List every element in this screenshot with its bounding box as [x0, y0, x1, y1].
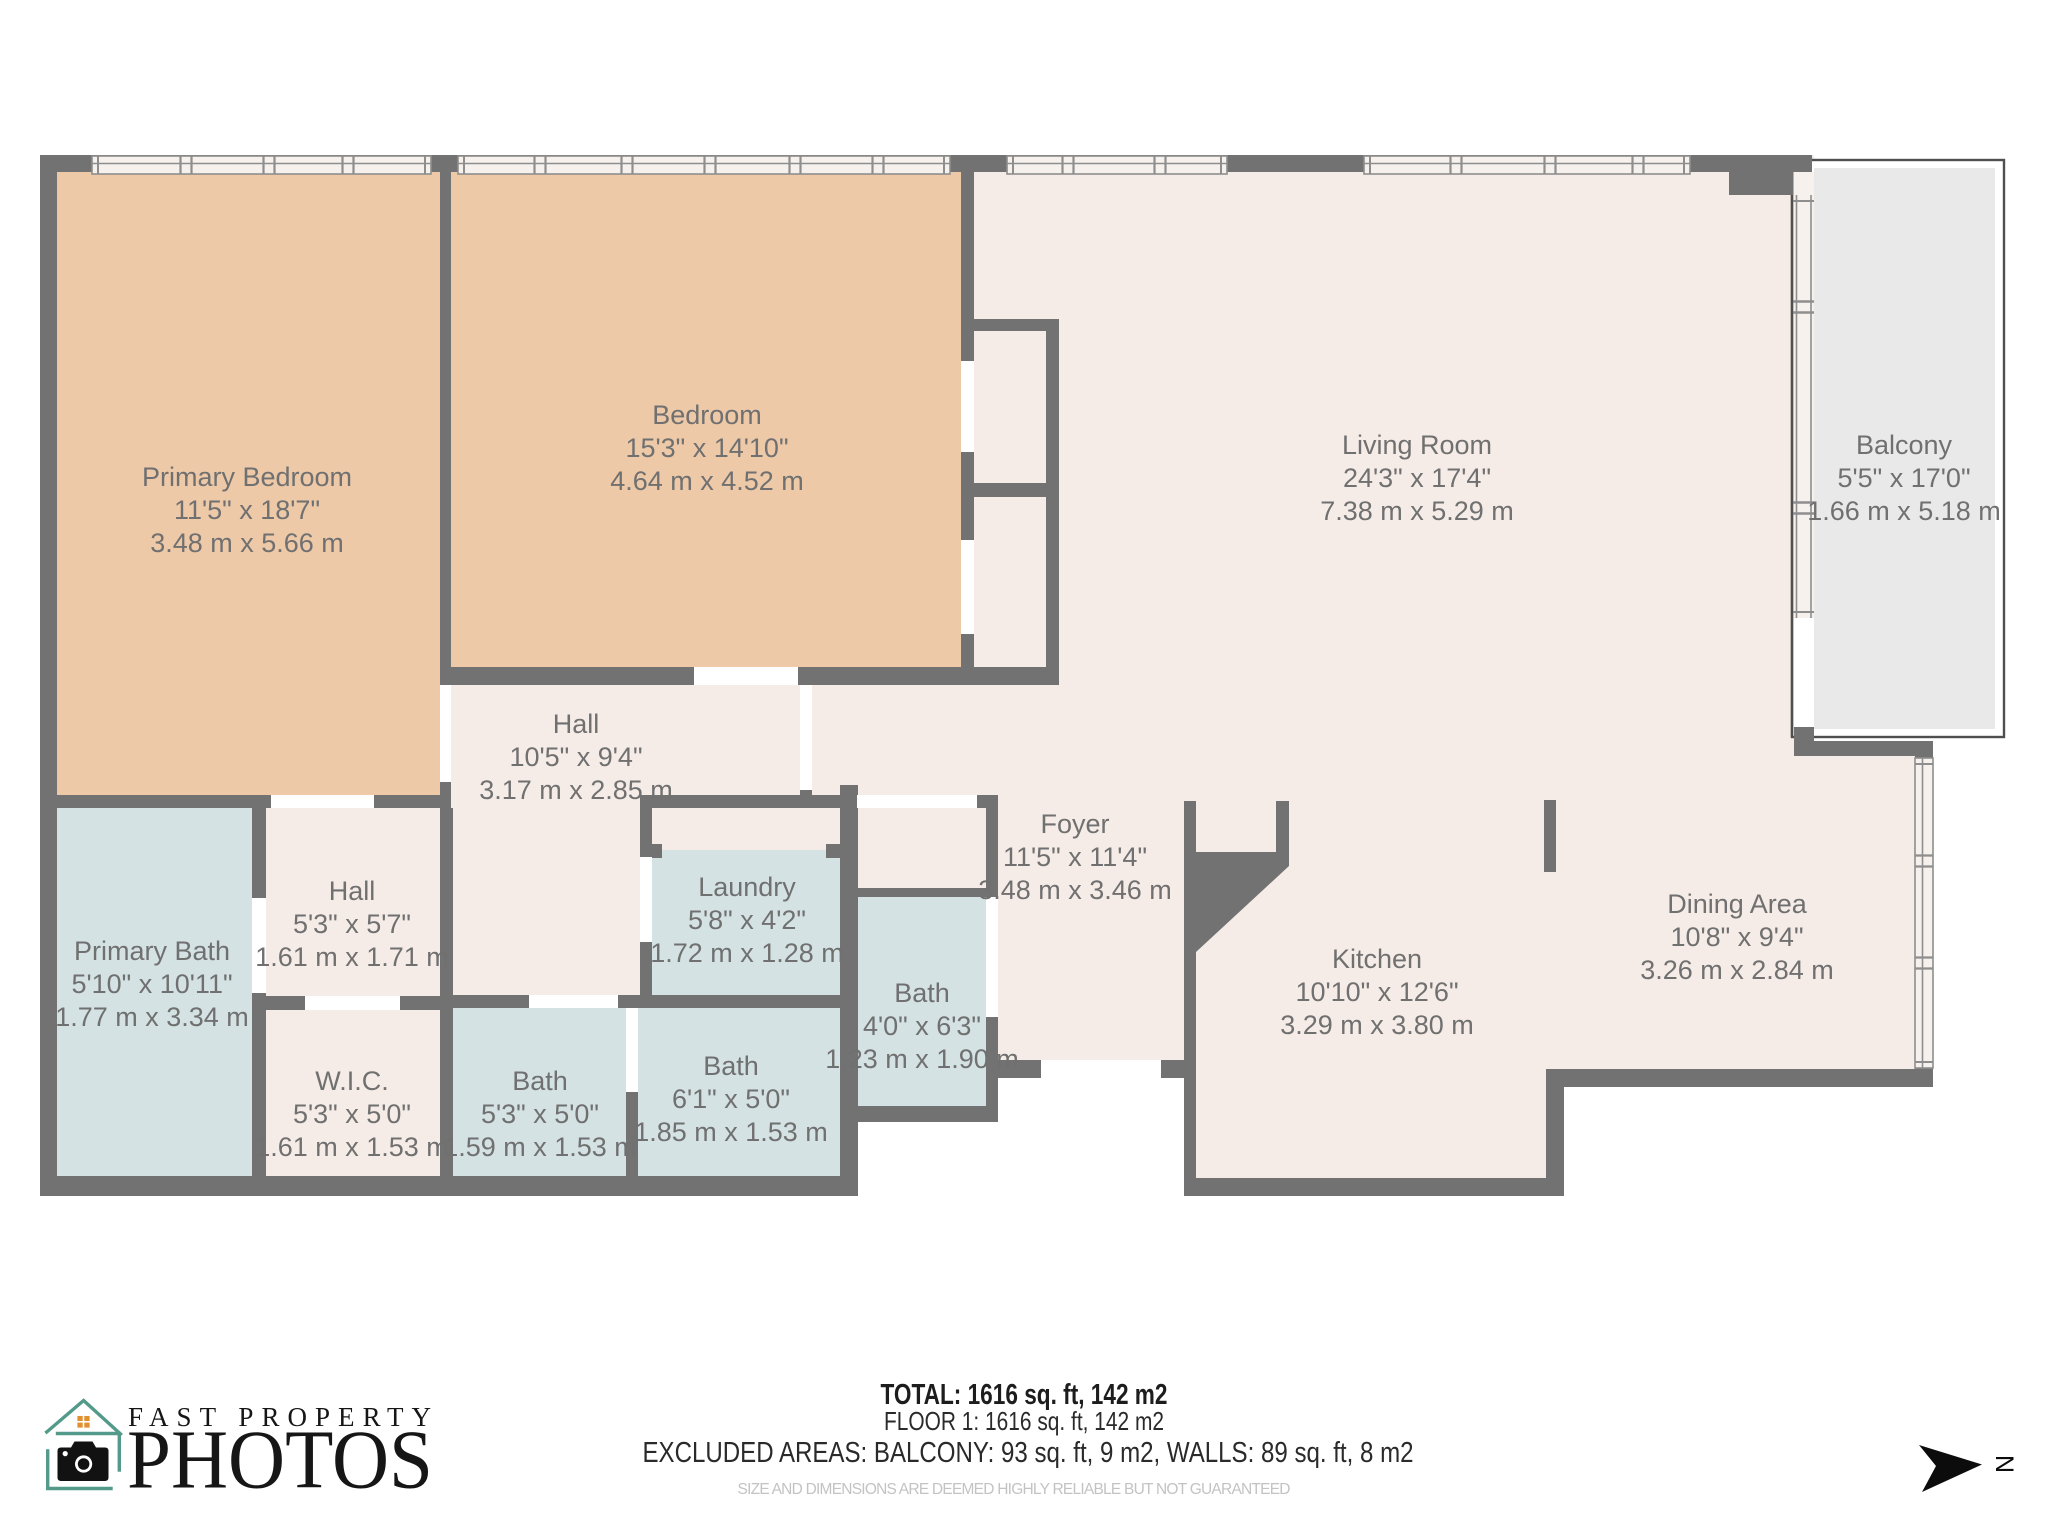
svg-text:3.48 m x 3.46 m: 3.48 m x 3.46 m [978, 875, 1172, 905]
svg-text:1.61 m x 1.53 m: 1.61 m x 1.53 m [255, 1132, 449, 1162]
svg-text:3.26 m x 2.84 m: 3.26 m x 2.84 m [1640, 955, 1834, 985]
svg-text:1.23 m x 1.90 m: 1.23 m x 1.90 m [825, 1044, 1019, 1074]
svg-text:1.66 m x 5.18 m: 1.66 m x 5.18 m [1807, 496, 2001, 526]
svg-text:Kitchen: Kitchen [1332, 944, 1422, 974]
svg-text:1.61 m x 1.71 m: 1.61 m x 1.71 m [255, 942, 449, 972]
svg-text:Foyer: Foyer [1040, 809, 1109, 839]
svg-text:Hall: Hall [329, 876, 376, 906]
svg-text:6'1" x 5'0": 6'1" x 5'0" [672, 1084, 790, 1114]
svg-text:11'5" x 18'7": 11'5" x 18'7" [174, 495, 320, 525]
svg-text:Primary Bedroom: Primary Bedroom [142, 462, 352, 492]
svg-text:1.72 m x 1.28 m: 1.72 m x 1.28 m [650, 938, 844, 968]
svg-text:3.29 m x 3.80 m: 3.29 m x 3.80 m [1280, 1010, 1474, 1040]
svg-text:5'10" x 10'11": 5'10" x 10'11" [71, 969, 232, 999]
svg-text:1.59 m x 1.53 m: 1.59 m x 1.53 m [443, 1132, 637, 1162]
svg-text:PHOTOS: PHOTOS [127, 1414, 433, 1507]
svg-text:SIZE AND DIMENSIONS ARE DEEMED: SIZE AND DIMENSIONS ARE DEEMED HIGHLY RE… [738, 1481, 1291, 1498]
svg-text:4'0" x 6'3": 4'0" x 6'3" [863, 1011, 981, 1041]
svg-text:5'3" x 5'0": 5'3" x 5'0" [293, 1099, 411, 1129]
svg-text:1.85 m x 1.53 m: 1.85 m x 1.53 m [634, 1117, 828, 1147]
svg-text:10'10" x 12'6": 10'10" x 12'6" [1295, 977, 1458, 1007]
svg-text:4.64 m x 4.52 m: 4.64 m x 4.52 m [610, 466, 804, 496]
svg-text:5'8" x 4'2": 5'8" x 4'2" [688, 905, 806, 935]
svg-text:FLOOR 1: 1616 sq. ft, 142 m2: FLOOR 1: 1616 sq. ft, 142 m2 [884, 1406, 1164, 1436]
svg-text:15'3" x 14'10": 15'3" x 14'10" [625, 433, 788, 463]
svg-text:W.I.C.: W.I.C. [315, 1066, 389, 1096]
svg-text:Laundry: Laundry [698, 872, 796, 902]
svg-text:24'3" x 17'4": 24'3" x 17'4" [1343, 463, 1491, 493]
svg-text:EXCLUDED AREAS: BALCONY: 93 sq: EXCLUDED AREAS: BALCONY: 93 sq. ft, 9 m2… [643, 1437, 1414, 1469]
svg-text:Primary Bath: Primary Bath [74, 936, 230, 966]
svg-text:10'5" x 9'4": 10'5" x 9'4" [509, 742, 642, 772]
svg-text:3.17 m x 2.85 m: 3.17 m x 2.85 m [479, 775, 673, 805]
svg-text:5'3" x 5'0": 5'3" x 5'0" [481, 1099, 599, 1129]
svg-text:10'8" x 9'4": 10'8" x 9'4" [1670, 922, 1803, 952]
svg-text:Living Room: Living Room [1342, 430, 1492, 460]
svg-text:Bedroom: Bedroom [652, 400, 762, 430]
svg-text:5'5" x 17'0": 5'5" x 17'0" [1837, 463, 1970, 493]
svg-text:3.48 m x 5.66 m: 3.48 m x 5.66 m [150, 528, 344, 558]
svg-text:5'3" x 5'7": 5'3" x 5'7" [293, 909, 411, 939]
svg-text:11'5" x 11'4": 11'5" x 11'4" [1003, 842, 1147, 872]
svg-text:Dining Area: Dining Area [1667, 889, 1808, 919]
svg-text:Bath: Bath [512, 1066, 568, 1096]
svg-text:Bath: Bath [894, 978, 950, 1008]
svg-text:N: N [1990, 1455, 2018, 1473]
svg-text:Hall: Hall [553, 709, 600, 739]
svg-text:Bath: Bath [703, 1051, 759, 1081]
svg-text:Balcony: Balcony [1856, 430, 1953, 460]
svg-text:7.38 m x 5.29 m: 7.38 m x 5.29 m [1320, 496, 1514, 526]
svg-text:1.77 m x 3.34 m: 1.77 m x 3.34 m [55, 1002, 249, 1032]
